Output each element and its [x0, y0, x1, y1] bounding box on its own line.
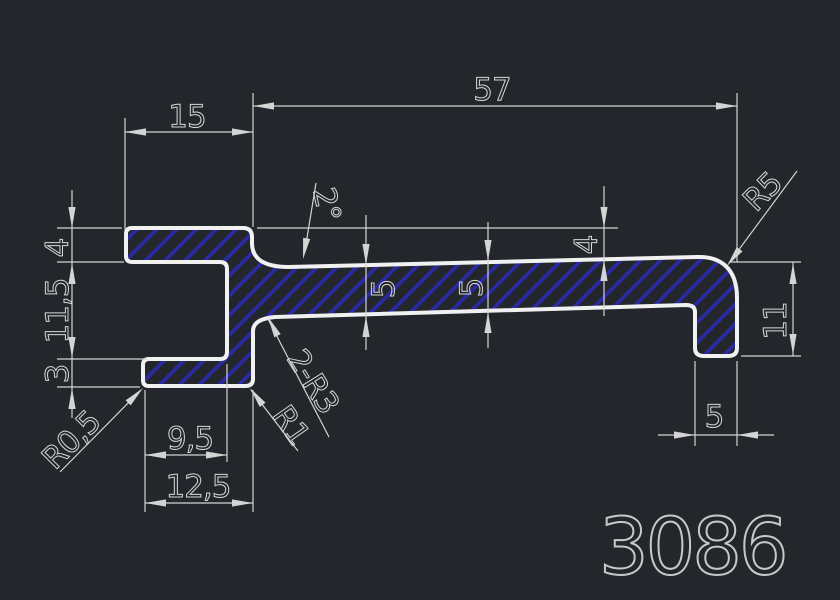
dim-label-web-thickness-left: 5	[366, 280, 402, 299]
dim-label-right-leg-height: 11	[758, 302, 794, 339]
dim-label-web-thickness-right: 5	[454, 279, 490, 298]
dim-label-top-flange-width: 15	[168, 99, 205, 135]
cad-drawing-canvas: 57 15 4 11,5 3 R0,5	[0, 0, 840, 600]
part-number: 3086	[599, 503, 786, 593]
dim-label-right-leg-width: 5	[705, 399, 724, 435]
dim-label-total-width: 57	[473, 72, 510, 108]
dim-label-web-offset: 4	[569, 236, 605, 255]
dim-label-left-inner-height: 11,5	[40, 278, 76, 343]
dim-label-bottom-flange-thickness: 3	[40, 365, 76, 384]
dim-label-bottom-inner-width: 9,5	[167, 421, 213, 457]
dim-label-bottom-flange-width: 12,5	[165, 469, 230, 505]
dim-label-top-flange-thickness: 4	[40, 239, 76, 258]
